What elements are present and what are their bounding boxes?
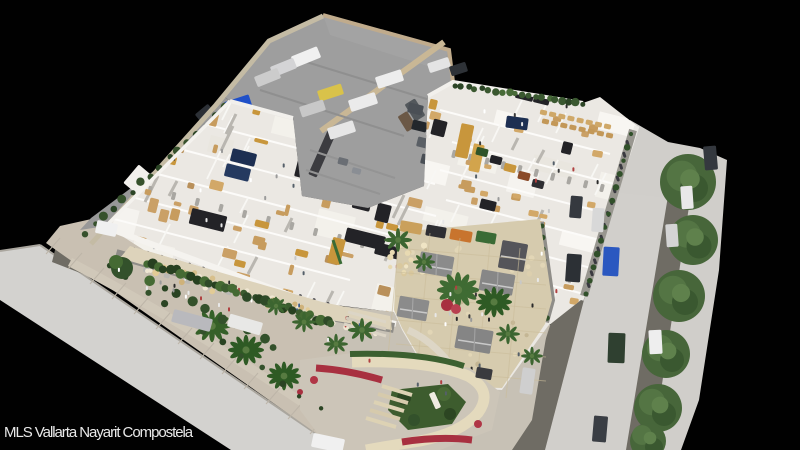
svg-text:MLS Vallarta Nayarit Compostel: MLS Vallarta Nayarit Compostela	[4, 424, 194, 441]
